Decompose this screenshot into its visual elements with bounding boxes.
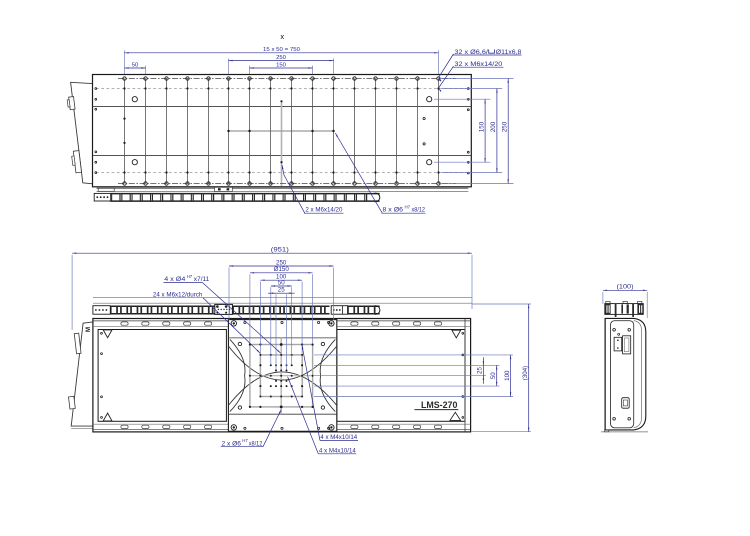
svg-text:H7: H7 — [242, 438, 248, 443]
svg-text:250: 250 — [276, 55, 287, 61]
svg-text:LMS-270: LMS-270 — [421, 400, 458, 410]
svg-text:15 x 50 = 750: 15 x 50 = 750 — [263, 47, 301, 53]
svg-text:2 x M6x14/20: 2 x M6x14/20 — [305, 207, 343, 214]
svg-text:150: 150 — [478, 121, 485, 132]
svg-text:H7: H7 — [187, 274, 193, 279]
svg-text:50: 50 — [278, 279, 285, 286]
svg-text:4 x M4x10/14: 4 x M4x10/14 — [319, 447, 356, 454]
svg-text:200: 200 — [490, 121, 497, 132]
svg-text:50: 50 — [132, 62, 139, 68]
svg-text:(951): (951) — [271, 247, 289, 254]
svg-text:4 x Ø4: 4 x Ø4 — [164, 276, 186, 283]
svg-text:Ø150: Ø150 — [274, 266, 290, 273]
svg-text:8 x Ø6: 8 x Ø6 — [383, 207, 404, 214]
svg-text:50: 50 — [490, 372, 497, 379]
svg-text:24 x M6x12/durch: 24 x M6x12/durch — [153, 291, 203, 298]
svg-text:H7: H7 — [405, 205, 411, 210]
svg-text:x8/12: x8/12 — [249, 440, 263, 447]
svg-text:150: 150 — [276, 62, 287, 68]
svg-text:x8/12: x8/12 — [412, 207, 426, 214]
svg-text:25: 25 — [278, 287, 285, 294]
svg-text:x: x — [280, 32, 284, 41]
svg-text:25: 25 — [477, 367, 484, 374]
svg-text:100: 100 — [504, 370, 511, 381]
svg-text:250: 250 — [501, 121, 508, 132]
svg-text:(100): (100) — [617, 284, 634, 291]
svg-text:(304): (304) — [522, 366, 529, 380]
svg-text:2 x Ø6: 2 x Ø6 — [222, 440, 242, 447]
svg-text:M: M — [86, 327, 92, 332]
svg-text:x7/11: x7/11 — [194, 276, 210, 283]
